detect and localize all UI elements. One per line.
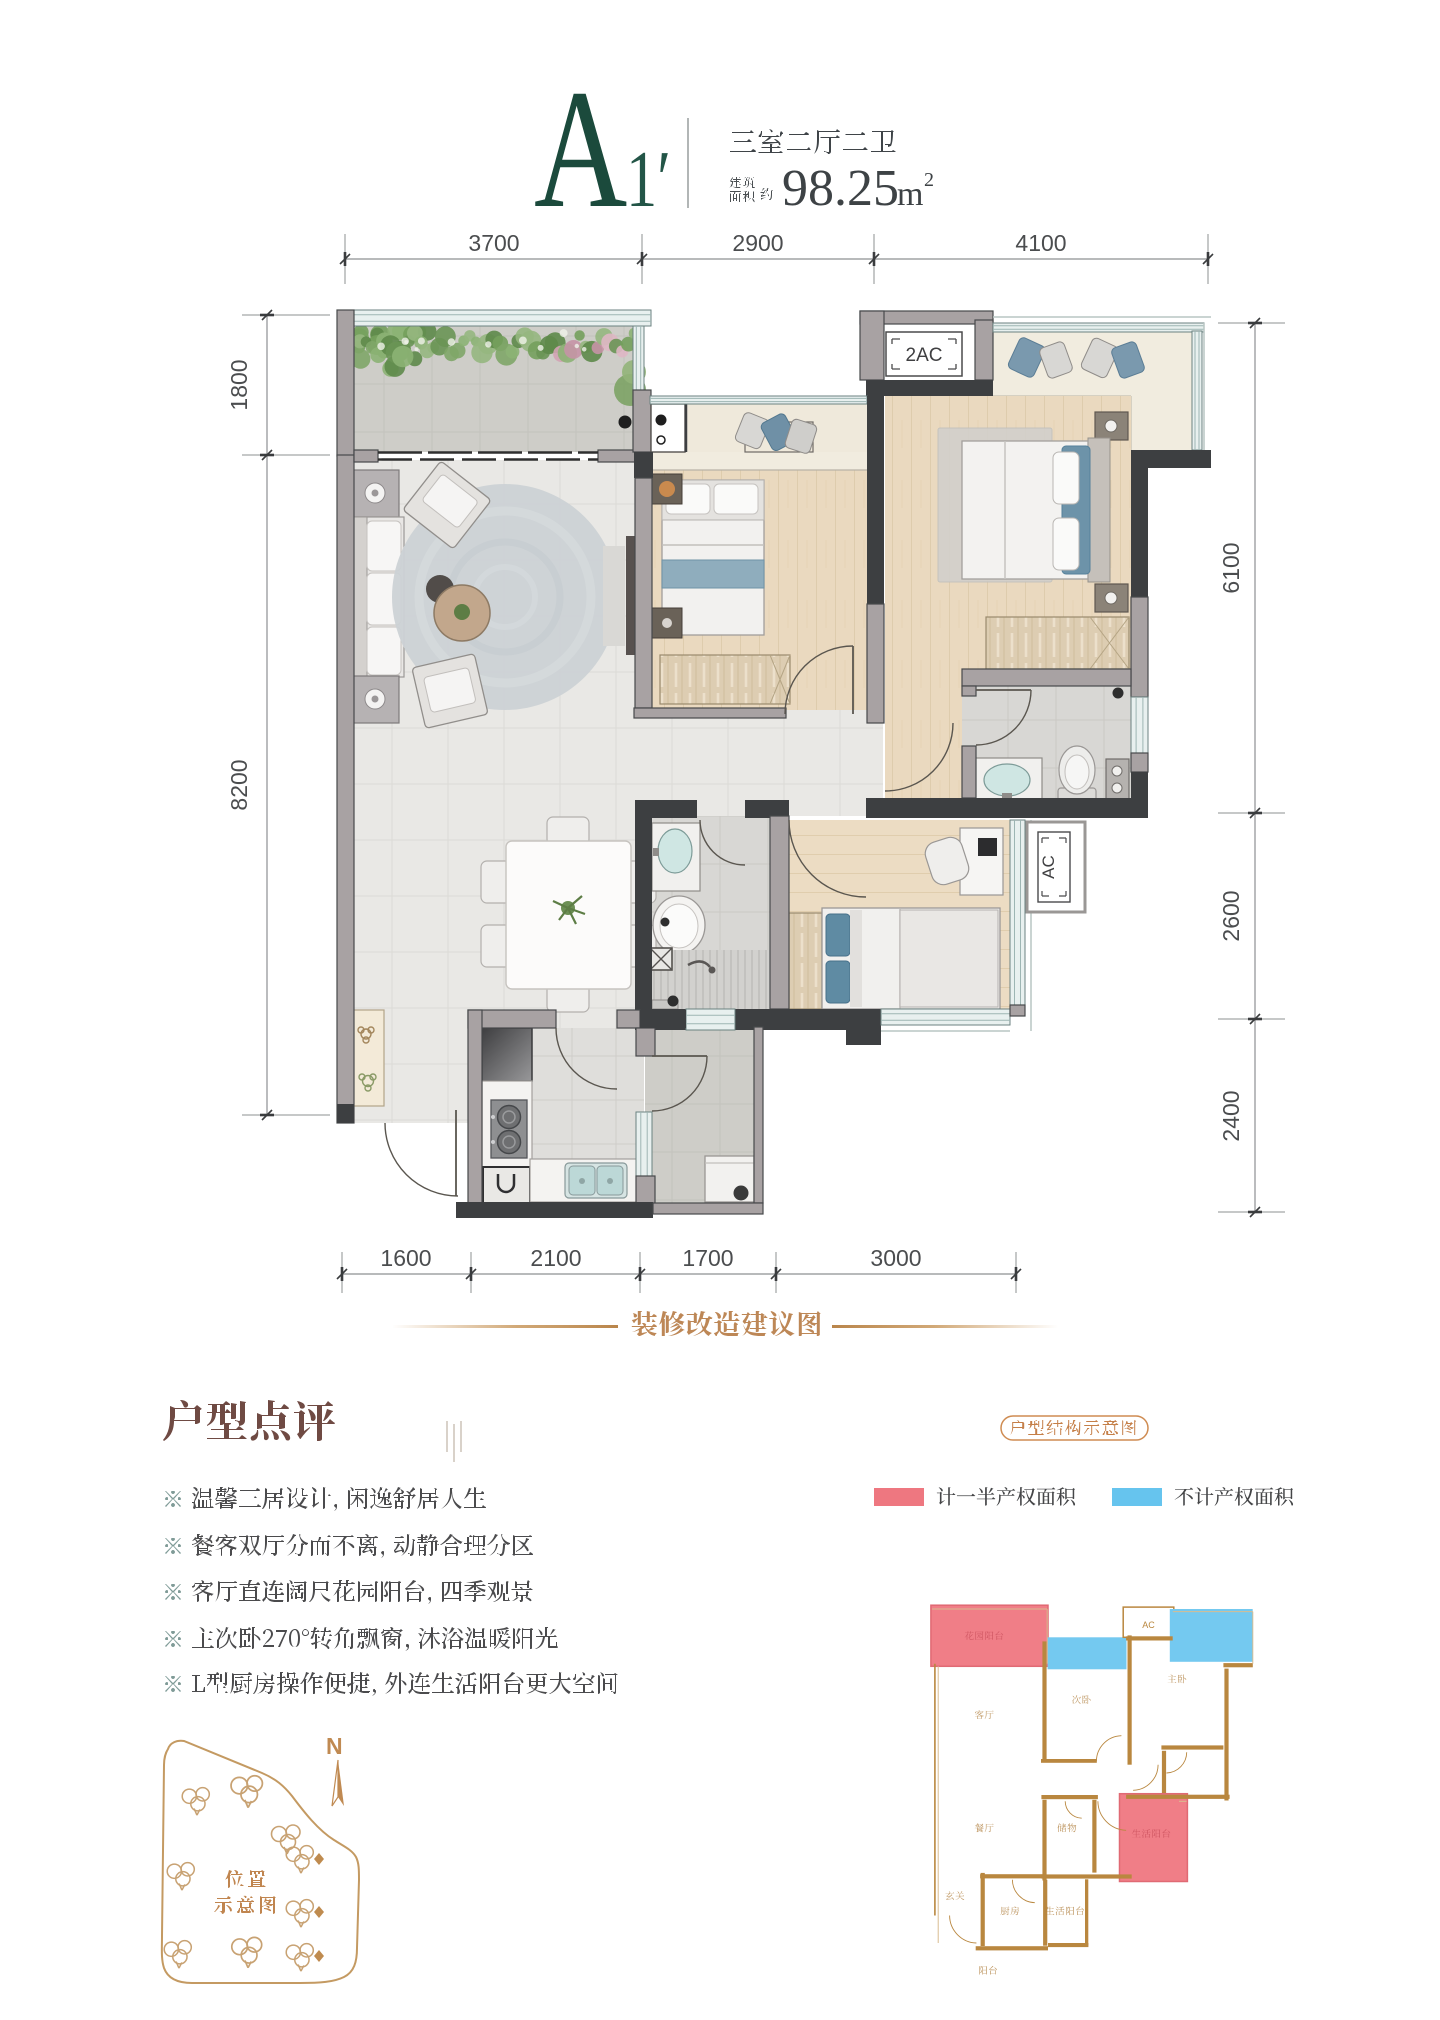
- svg-text:2600: 2600: [1218, 890, 1244, 941]
- svg-text:AC: AC: [1039, 855, 1058, 879]
- svg-text:1700: 1700: [682, 1245, 733, 1271]
- svg-text:3700: 3700: [468, 230, 519, 256]
- svg-text:3000: 3000: [870, 1245, 921, 1271]
- svg-text:A: A: [534, 54, 627, 243]
- svg-text:2400: 2400: [1218, 1090, 1244, 1141]
- svg-text:98.25: 98.25: [782, 160, 899, 217]
- svg-text:AC: AC: [1142, 1620, 1155, 1630]
- svg-text:1′: 1′: [626, 135, 671, 224]
- svg-text:2AC: 2AC: [906, 345, 943, 366]
- svg-text:6100: 6100: [1218, 542, 1244, 593]
- svg-text:8200: 8200: [226, 759, 252, 810]
- svg-text:m: m: [897, 176, 923, 213]
- svg-text:1600: 1600: [380, 1245, 431, 1271]
- svg-text:2: 2: [924, 169, 934, 191]
- svg-text:2100: 2100: [530, 1245, 581, 1271]
- svg-text:1800: 1800: [226, 359, 252, 410]
- svg-text:2900: 2900: [732, 230, 783, 256]
- svg-text:4100: 4100: [1015, 230, 1066, 256]
- svg-text:N: N: [326, 1733, 343, 1759]
